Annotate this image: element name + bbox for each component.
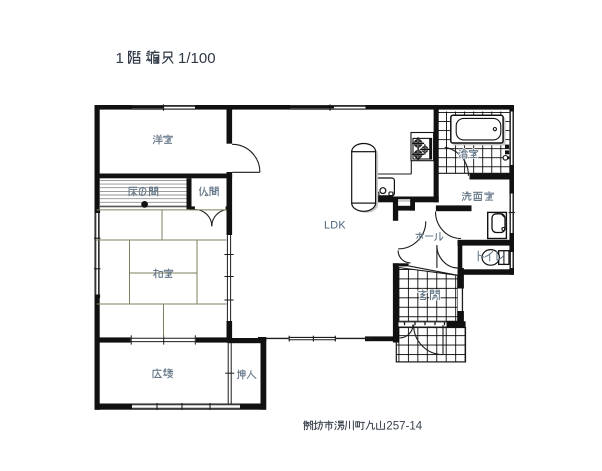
svg-text:1/100: 1/100: [178, 50, 216, 67]
svg-text:1: 1: [116, 50, 124, 67]
svg-text:LDK: LDK: [324, 220, 346, 232]
svg-text:257-14: 257-14: [386, 420, 422, 432]
